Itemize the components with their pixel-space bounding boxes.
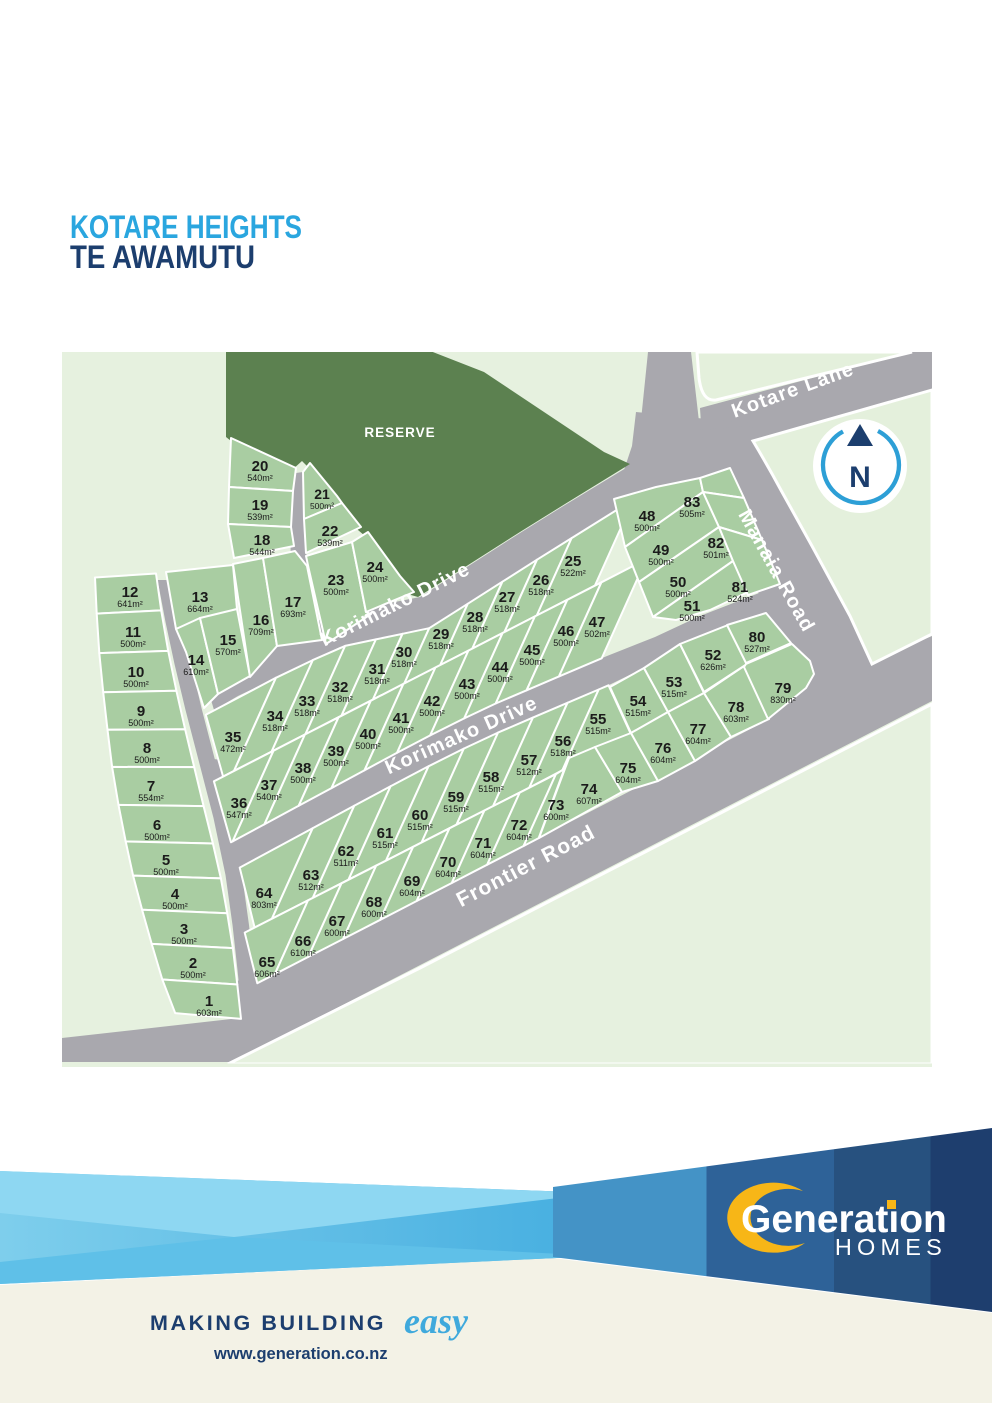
svg-text:500m²: 500m² [419,708,445,718]
svg-text:500m²: 500m² [310,501,334,511]
svg-text:522m²: 522m² [560,568,586,578]
svg-text:830m²: 830m² [770,695,796,705]
svg-text:539m²: 539m² [317,538,343,548]
svg-text:641m²: 641m² [117,599,143,609]
svg-text:604m²: 604m² [470,850,496,860]
svg-text:803m²: 803m² [251,900,277,910]
svg-text:500m²: 500m² [180,970,206,980]
svg-text:500m²: 500m² [323,587,349,597]
svg-text:518m²: 518m² [428,641,454,651]
svg-text:604m²: 604m² [506,832,532,842]
svg-text:547m²: 547m² [226,810,252,820]
svg-text:500m²: 500m² [487,674,513,684]
svg-text:MAKING BUILDING: MAKING BUILDING [150,1311,386,1335]
svg-text:515m²: 515m² [372,840,398,850]
svg-text:604m²: 604m² [615,775,641,785]
svg-text:500m²: 500m² [388,725,414,735]
svg-text:606m²: 606m² [254,969,280,979]
svg-text:515m²: 515m² [625,708,651,718]
svg-text:515m²: 515m² [585,726,611,736]
svg-text:600m²: 600m² [324,928,350,938]
svg-text:709m²: 709m² [248,627,274,637]
svg-text:518m²: 518m² [528,587,554,597]
svg-text:600m²: 600m² [543,812,569,822]
svg-text:512m²: 512m² [516,767,542,777]
svg-text:HOMES: HOMES [835,1234,947,1260]
svg-text:610m²: 610m² [183,667,209,677]
svg-text:500m²: 500m² [153,867,179,877]
svg-text:603m²: 603m² [196,1008,222,1018]
svg-text:570m²: 570m² [215,647,241,657]
svg-text:502m²: 502m² [584,629,610,639]
svg-text:500m²: 500m² [454,691,480,701]
svg-text:518m²: 518m² [364,676,390,686]
svg-text:604m²: 604m² [435,869,461,879]
svg-text:500m²: 500m² [162,901,188,911]
svg-text:518m²: 518m² [550,748,576,758]
svg-text:500m²: 500m² [144,832,170,842]
svg-text:604m²: 604m² [650,755,676,765]
svg-text:607m²: 607m² [576,796,602,806]
svg-text:512m²: 512m² [298,882,324,892]
svg-text:540m²: 540m² [256,792,282,802]
svg-text:www.generation.co.nz: www.generation.co.nz [213,1345,388,1363]
svg-text:500m²: 500m² [634,523,660,533]
svg-text:N: N [849,461,871,494]
svg-text:518m²: 518m² [294,708,320,718]
svg-text:515m²: 515m² [443,804,469,814]
svg-text:544m²: 544m² [249,547,275,557]
svg-text:500m²: 500m² [120,639,146,649]
svg-text:515m²: 515m² [407,822,433,832]
svg-text:540m²: 540m² [247,473,273,483]
svg-text:500m²: 500m² [679,613,705,623]
svg-text:515m²: 515m² [661,689,687,699]
svg-text:610m²: 610m² [290,948,316,958]
svg-text:501m²: 501m² [703,550,729,560]
svg-text:500m²: 500m² [290,775,316,785]
svg-text:527m²: 527m² [744,644,770,654]
svg-text:505m²: 505m² [679,509,705,519]
svg-text:518m²: 518m² [462,624,488,634]
svg-text:511m²: 511m² [334,858,359,868]
svg-text:539m²: 539m² [247,512,273,522]
svg-text:472m²: 472m² [220,744,246,754]
svg-text:500m²: 500m² [123,679,149,689]
svg-text:600m²: 600m² [361,909,387,919]
svg-text:21: 21 [314,486,330,502]
svg-text:554m²: 554m² [138,793,164,803]
svg-text:518m²: 518m² [327,694,353,704]
svg-text:693m²: 693m² [280,609,306,619]
svg-text:500m²: 500m² [171,936,197,946]
svg-text:500m²: 500m² [519,657,545,667]
svg-text:500m²: 500m² [362,574,388,584]
svg-text:515m²: 515m² [478,784,504,794]
svg-text:500m²: 500m² [355,741,381,751]
svg-text:500m²: 500m² [323,758,349,768]
svg-text:500m²: 500m² [648,557,674,567]
svg-text:604m²: 604m² [685,736,711,746]
svg-text:518m²: 518m² [391,659,417,669]
svg-text:604m²: 604m² [399,888,425,898]
svg-text:626m²: 626m² [700,662,726,672]
svg-text:500m²: 500m² [134,755,160,765]
svg-text:518m²: 518m² [494,604,520,614]
svg-text:524m²: 524m² [727,594,753,604]
svg-text:easy: easy [404,1301,469,1341]
svg-text:RESERVE: RESERVE [364,425,435,440]
svg-text:518m²: 518m² [262,723,288,733]
svg-text:TE AWAMUTU: TE AWAMUTU [70,239,255,275]
svg-text:603m²: 603m² [723,714,749,724]
svg-text:500m²: 500m² [553,638,579,648]
svg-text:664m²: 664m² [187,604,213,614]
svg-text:500m²: 500m² [128,718,154,728]
